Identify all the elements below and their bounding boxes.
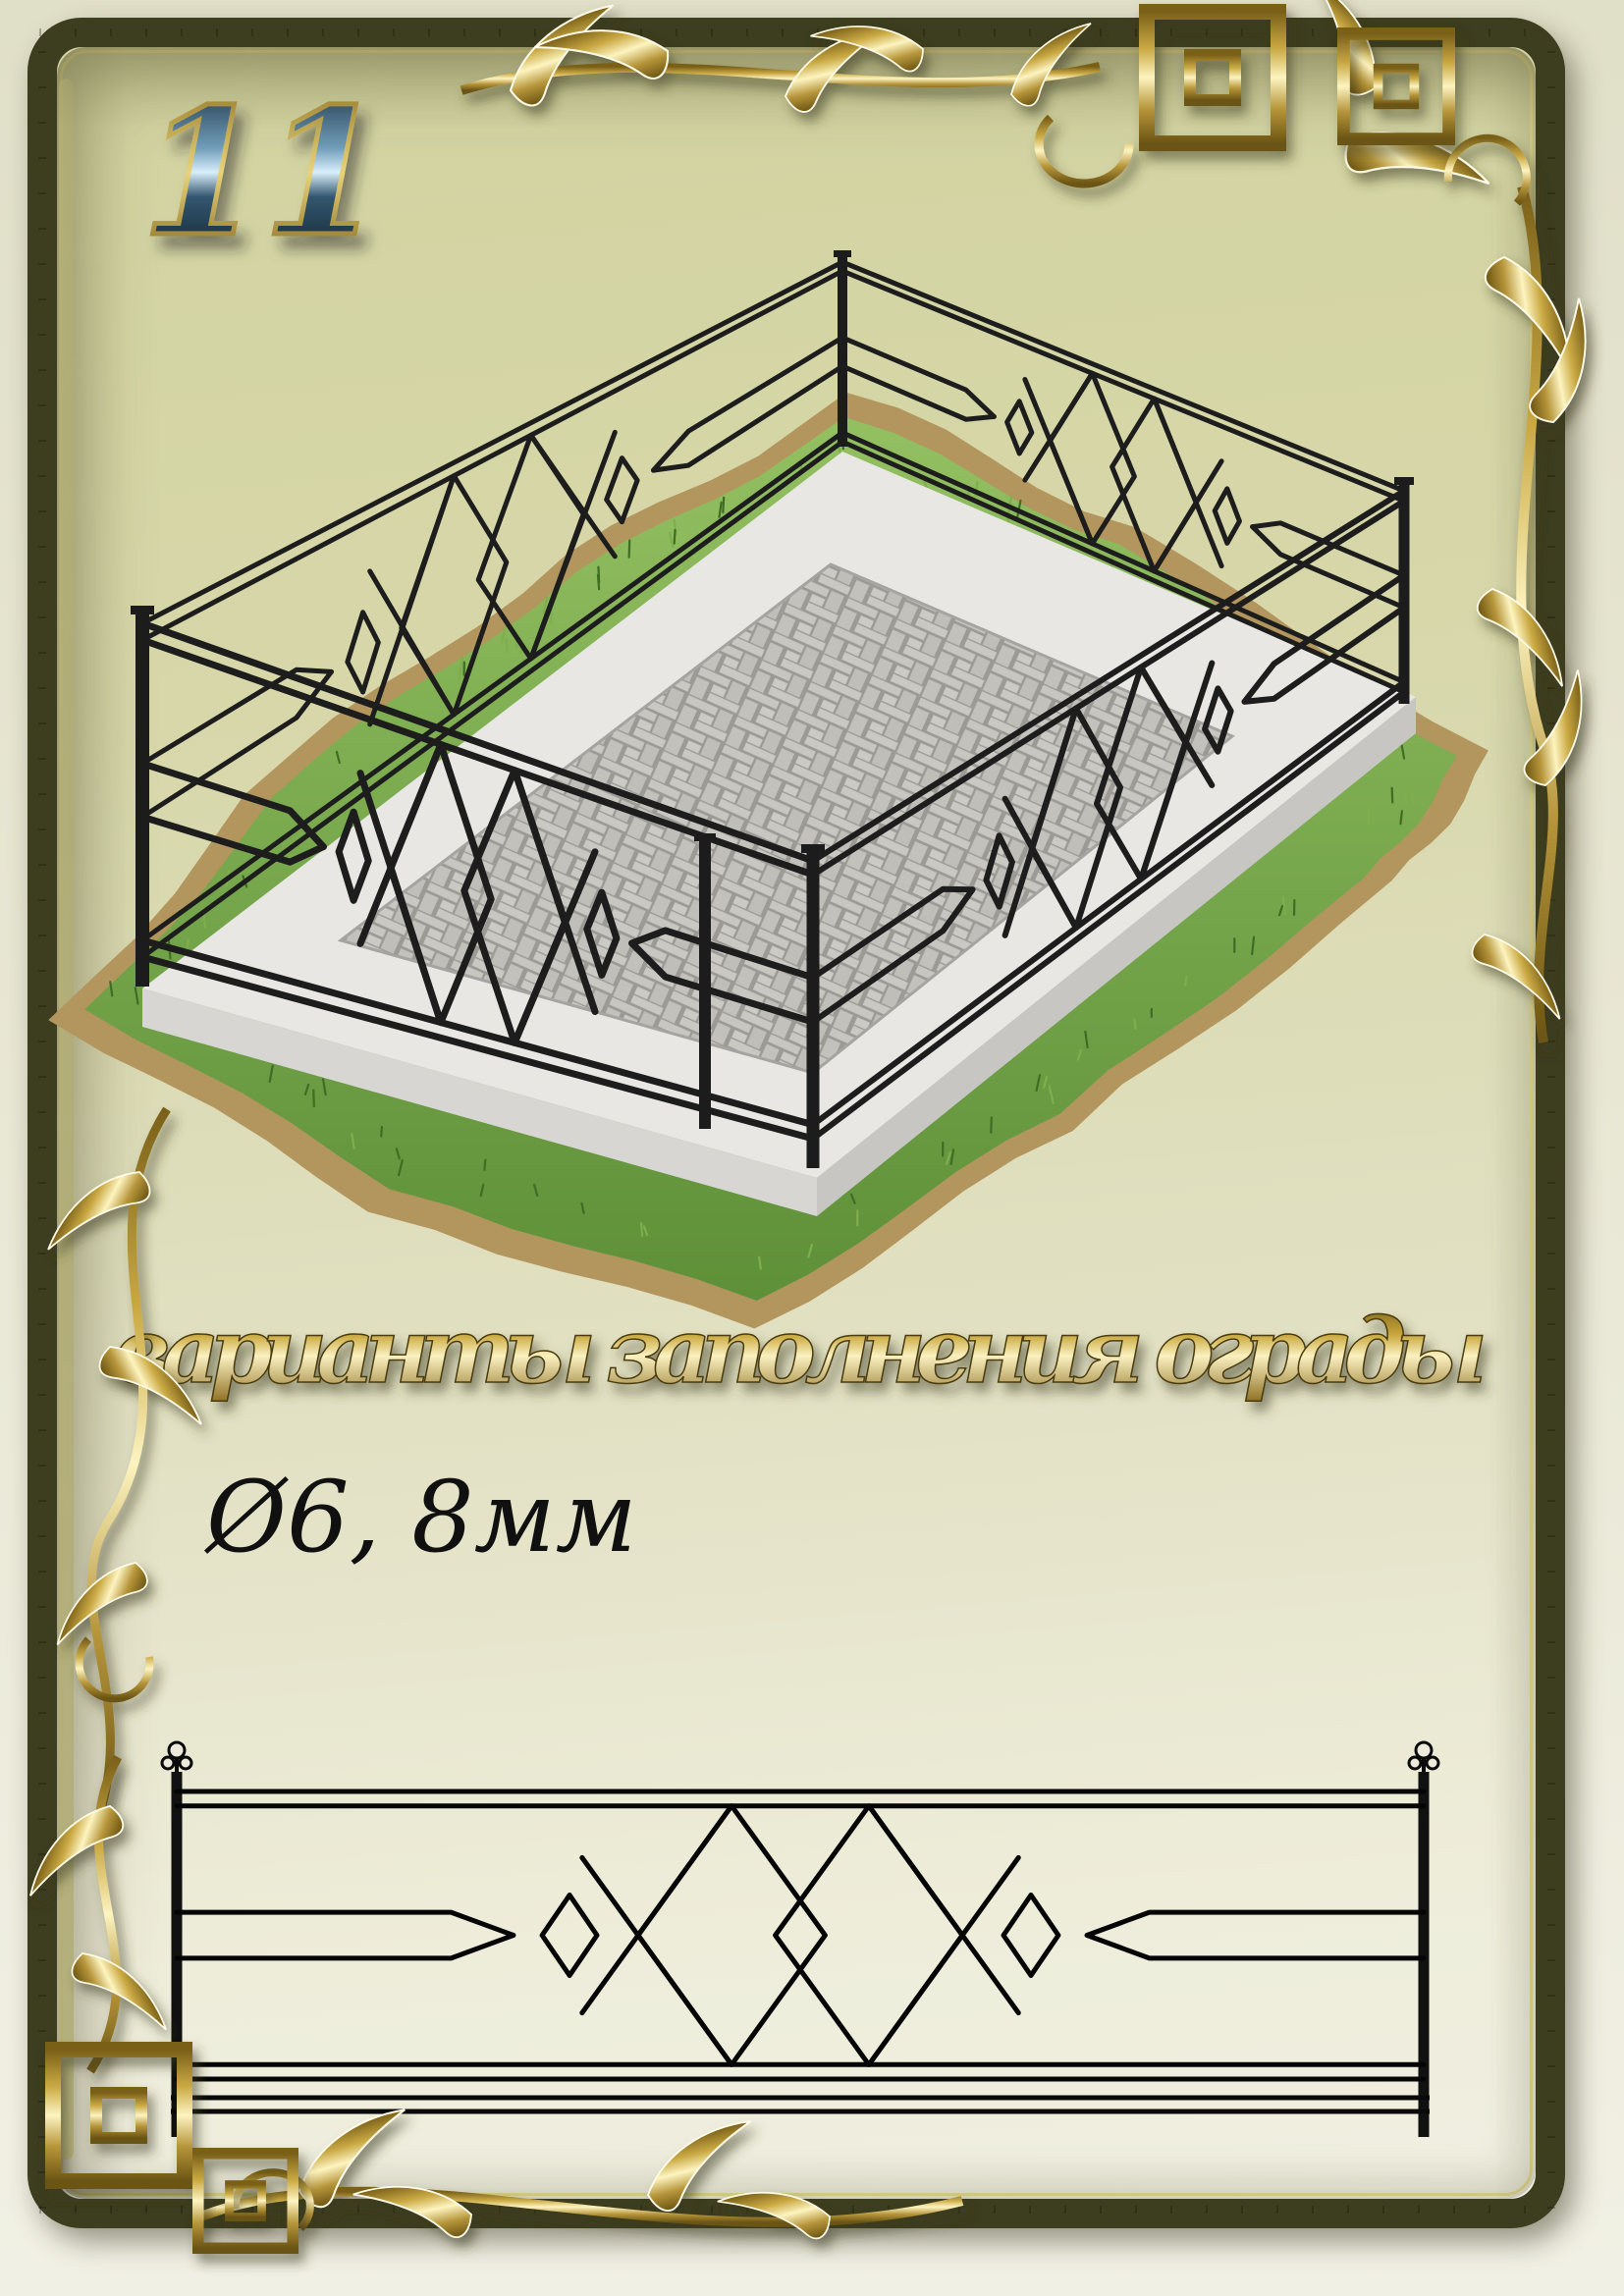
fence-3d-render — [69, 250, 1542, 1315]
drawing-right-post — [1419, 1772, 1430, 2137]
drawing-panel-pattern — [177, 1791, 1424, 2079]
page-number-text: 11 — [141, 70, 385, 275]
fence-panel-drawing — [147, 1674, 1453, 2164]
heading-text: варианты заполнения ограды — [113, 1298, 1488, 1404]
drawing-left-post — [172, 1772, 183, 2137]
diameter-spec: Ø6, 8мм — [196, 1433, 825, 1600]
heading-title: варианты заполнения ограды — [83, 1266, 1517, 1433]
drawing-left-post-finial — [162, 1742, 191, 1776]
catalog-page: 11 варианты заполнения ограды Ø6, 8мм — [0, 0, 1624, 2296]
drawing-skirt-rails — [171, 2098, 1430, 2111]
drawing-right-post-finial — [1409, 1742, 1438, 1776]
diameter-text: Ø6, 8мм — [203, 1460, 637, 1575]
